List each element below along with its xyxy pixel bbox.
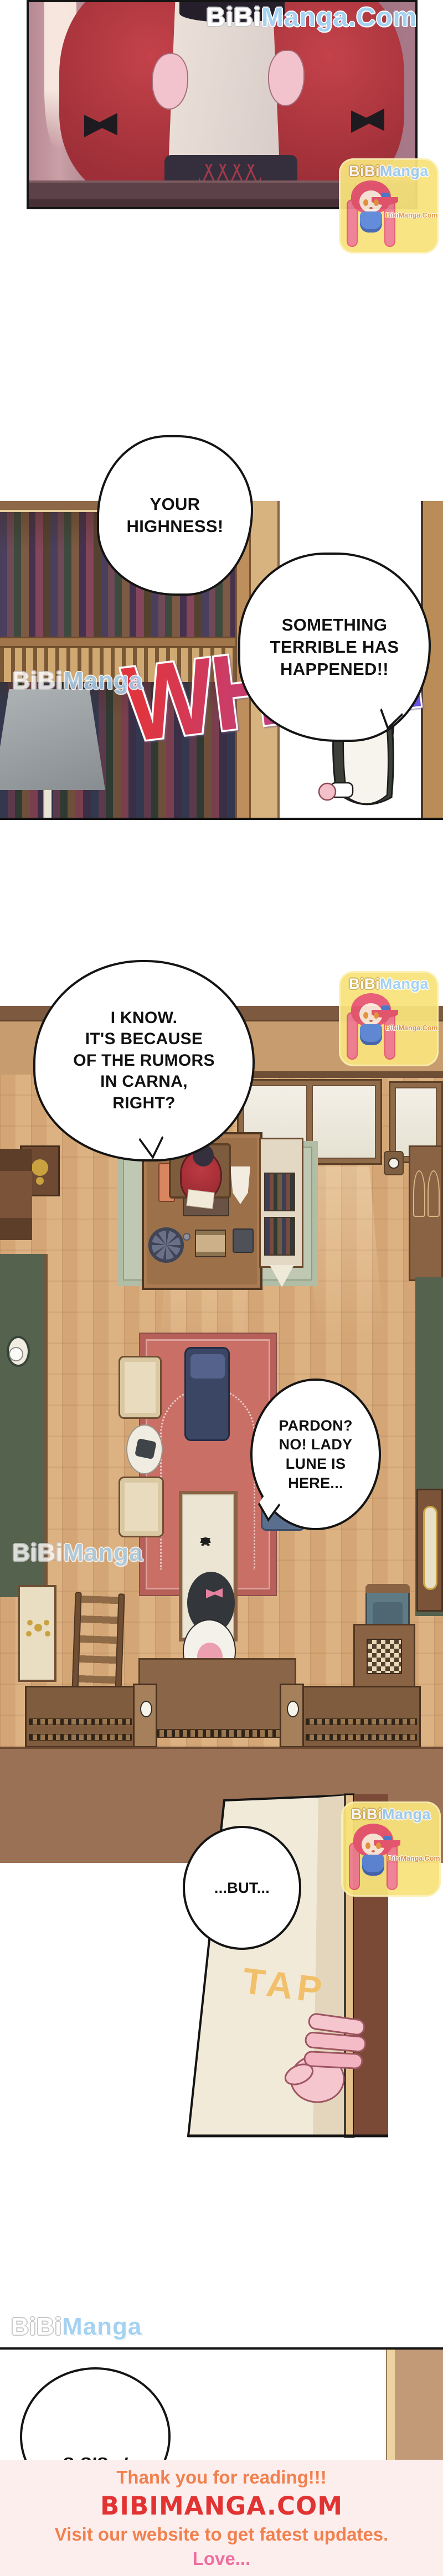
site-watermark-top: BiBiManga.Com xyxy=(206,2,417,33)
chaise-pillow xyxy=(190,1354,225,1379)
badge-title: BiBiManga xyxy=(341,1801,441,1823)
bubble-text: I KNOW. IT'S BECAUSE OF THE RUMORS IN CA… xyxy=(73,1008,215,1114)
mascot-dress xyxy=(360,211,382,233)
desk-lamp-shade xyxy=(0,689,105,790)
bibimanga-badge: BiBiManga BibiManga.Com xyxy=(339,971,439,1066)
bubble-text: YOUR HIGHNESS! xyxy=(127,493,224,537)
chair-wood-top xyxy=(365,1584,410,1593)
site-watermark-panel3: BiBiManga xyxy=(12,1539,143,1567)
door-knob xyxy=(9,1347,23,1361)
stacked-books xyxy=(264,1217,295,1256)
mascot-mouth xyxy=(369,1020,373,1022)
panel-top-border xyxy=(0,2347,443,2350)
cabinet-arch xyxy=(427,1170,440,1217)
footer-love-text: Love... xyxy=(193,2548,251,2569)
bibimanga-badge: BiBiManga BibiManga.Com xyxy=(339,158,439,254)
bubble-text: PARDON? NO! LADY LUNE IS HERE... xyxy=(279,1416,353,1493)
white-lamp-globe xyxy=(287,1701,299,1717)
clock-face xyxy=(388,1158,399,1169)
site-watermark-panel2: BiBiManga xyxy=(12,667,143,695)
small-chest xyxy=(195,1230,226,1257)
paper-note xyxy=(230,1166,250,1204)
tray-box xyxy=(135,1438,157,1459)
mascot-mouth xyxy=(369,207,373,209)
bottom-shelf-left xyxy=(25,1686,136,1748)
badge-site-text: BibiManga.Com xyxy=(385,1024,436,1032)
badge-manga-text: Manga xyxy=(382,1806,431,1823)
bubble-text: SOMETHING TERRIBLE HAS HAPPENED!! xyxy=(270,614,399,680)
shelf-bead-row xyxy=(29,1734,132,1741)
gold-ornament xyxy=(36,1177,44,1185)
bottom-shelf-right xyxy=(302,1686,421,1748)
window-pane xyxy=(312,1085,376,1159)
chess-table xyxy=(353,1624,415,1689)
mascot-eye-right xyxy=(374,1012,379,1019)
door-edge-strip xyxy=(386,2350,443,2460)
mascot-face xyxy=(359,1003,383,1025)
bibimanga-badge: BiBiManga BibiManga.Com xyxy=(341,1801,441,1897)
side-book-stand xyxy=(259,1138,303,1268)
badge-manga-text: Manga xyxy=(380,163,429,179)
gold-candelabra xyxy=(34,1624,42,1632)
cream-armchair xyxy=(119,1477,164,1537)
navy-chaise xyxy=(184,1347,230,1441)
manga-reader-page: BiBiManga.Com BiBiManga BibiManga.Com YO… xyxy=(0,0,443,2576)
mascot-dress xyxy=(362,1855,384,1876)
shelf-bead-row xyxy=(306,1718,417,1725)
reader-footer: Thank you for reading!!! BIBIMANGA.COM V… xyxy=(0,2460,443,2576)
shelf-post xyxy=(133,1684,157,1748)
mascot-eye-left xyxy=(363,199,368,206)
round-side-table xyxy=(126,1424,163,1474)
white-lamp-globe xyxy=(140,1701,152,1717)
mascot-face xyxy=(362,1834,385,1856)
badge-title: BiBiManga xyxy=(339,971,439,993)
window-rail xyxy=(230,1071,443,1078)
glass-cabinet xyxy=(409,1145,443,1281)
shelf-post xyxy=(280,1684,304,1748)
coin xyxy=(183,1233,190,1241)
badge-site-text: BibiManga.Com xyxy=(388,1855,439,1862)
chess-board xyxy=(367,1639,402,1674)
footer-site-text: BIBIMANGA.COM xyxy=(100,2491,343,2521)
badge-bibi-text: BiBi xyxy=(351,1806,382,1823)
footer-visit-text: Visit our website to get fatest updates. xyxy=(55,2524,389,2545)
bubble-text: ...BUT... xyxy=(214,1878,270,1898)
footer-thanks-text: Thank you for reading!!! xyxy=(116,2467,327,2488)
cabinet-arch xyxy=(413,1170,425,1217)
mascot-eye-left xyxy=(365,1842,370,1849)
badge-title: BiBiManga xyxy=(339,158,439,180)
stacked-books xyxy=(264,1173,295,1211)
shelf-bead-row xyxy=(306,1734,417,1741)
badge-manga-text: Manga xyxy=(380,975,429,992)
watermark-manga-text: Manga xyxy=(62,2313,142,2340)
mascot-dress xyxy=(360,1024,382,1045)
badge-bibi-text: BiBi xyxy=(349,975,380,992)
shelf-back-panel xyxy=(138,1658,296,1733)
mascot-mouth xyxy=(372,1850,375,1852)
speech-bubble-your-highness: YOUR HIGHNESS! xyxy=(97,435,253,596)
spider xyxy=(201,1537,210,1545)
shelf-bead-row xyxy=(29,1718,132,1725)
cream-armchair xyxy=(119,1356,162,1419)
mascot-face xyxy=(359,190,383,213)
mascot-eye-right xyxy=(374,199,379,206)
watermark-manga-text: Manga.Com xyxy=(261,3,417,32)
mascot-eye-left xyxy=(363,1012,368,1019)
dark-box xyxy=(233,1228,254,1253)
watermark-bibi-text: BiBi xyxy=(12,667,63,694)
lady-reading-paper xyxy=(186,1189,214,1209)
desk-lamp-pole xyxy=(43,789,52,820)
watermark-bibi-text: BiBi xyxy=(11,2313,62,2340)
wardrobe xyxy=(416,1489,443,1612)
gold-ornament xyxy=(32,1159,48,1176)
speech-bubble-but: ...BUT... xyxy=(183,1826,301,1950)
badge-bibi-text: BiBi xyxy=(349,163,380,179)
site-watermark-bottom: BiBiManga xyxy=(11,2313,142,2341)
watermark-bibi-text: BiBi xyxy=(206,3,261,32)
mascot-eye-right xyxy=(376,1842,381,1849)
watermark-manga-text: Manga xyxy=(63,1539,143,1566)
candelabra-table xyxy=(18,1585,56,1682)
shelf-bead-row xyxy=(155,1729,296,1738)
wall-clock xyxy=(384,1151,404,1175)
left-cabinet xyxy=(0,1149,32,1240)
badge-site-text: BibiManga.Com xyxy=(385,211,436,219)
ship-wheel-ornament xyxy=(148,1227,184,1263)
watermark-bibi-text: BiBi xyxy=(12,1539,63,1566)
wardrobe-mirror xyxy=(423,1506,437,1590)
watermark-manga-text: Manga xyxy=(63,667,143,694)
